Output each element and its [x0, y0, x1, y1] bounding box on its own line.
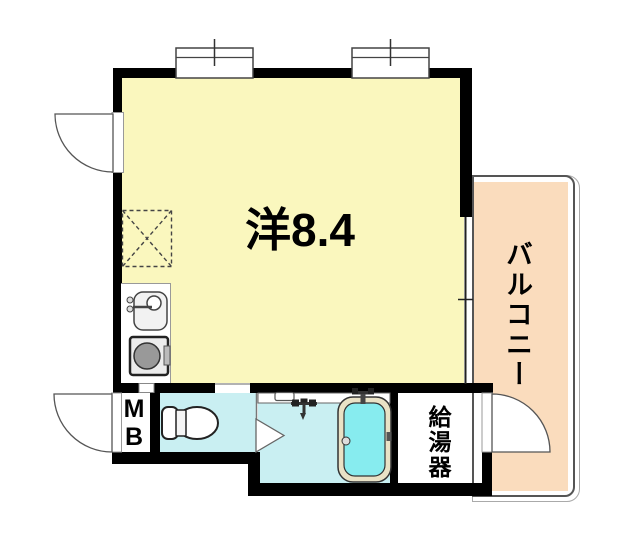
floorplan: 洋8.4 バルコニー MB 給湯器 [0, 0, 640, 543]
wall-left-upper [113, 78, 122, 113]
wall-bottom-b [154, 383, 215, 393]
toilet-door-leaf [139, 384, 154, 393]
wall-right [460, 68, 472, 217]
wall-mb-right [150, 393, 160, 452]
wall-under-mb-toilet [112, 452, 253, 464]
bathroom-floor [258, 393, 390, 483]
wall-heater-right [482, 452, 492, 496]
door-arc-icon [55, 113, 124, 173]
kitchen-counter [121, 283, 171, 383]
wall-bottom-a [113, 383, 139, 393]
wall-bath-heater [390, 383, 398, 496]
main-room-label: 洋8.4 [195, 202, 405, 258]
wall-bottom-c [250, 383, 493, 393]
meter-box-label: MB [120, 395, 148, 451]
wall-toilet-bath-corner [248, 452, 260, 483]
door-arc-icon [54, 393, 122, 452]
wall-bath-bottom [248, 483, 492, 496]
balcony-label: バルコニー [503, 230, 537, 400]
water-heater-label: 給湯器 [425, 402, 451, 482]
wall-top [113, 68, 472, 78]
toilet-room-floor [160, 393, 256, 452]
